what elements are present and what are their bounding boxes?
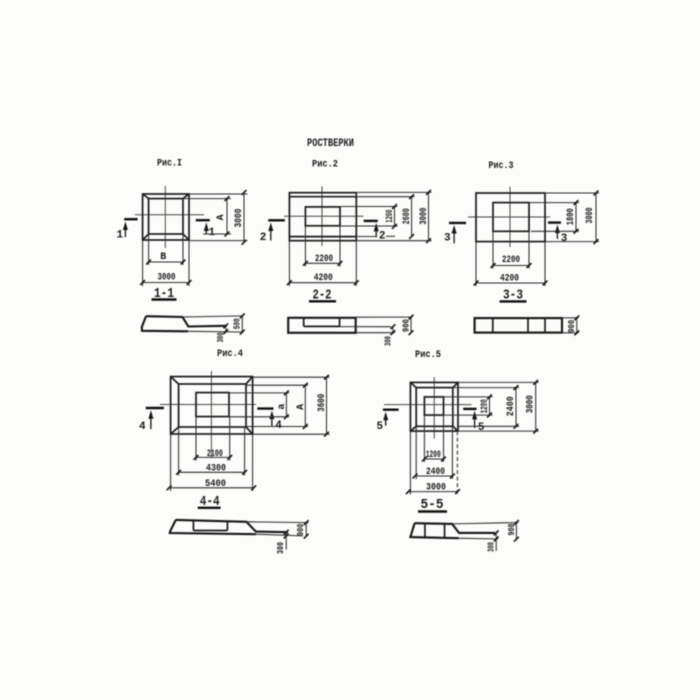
svg-text:1: 1 [116, 230, 123, 242]
svg-text:2200: 2200 [315, 254, 333, 265]
svg-text:3600: 3600 [317, 394, 328, 412]
svg-text:5400: 5400 [205, 479, 226, 490]
svg-text:1200: 1200 [480, 399, 491, 413]
svg-text:3000: 3000 [426, 482, 446, 493]
svg-text:3000: 3000 [234, 208, 245, 227]
svg-text:5: 5 [478, 422, 485, 434]
svg-text:3000: 3000 [585, 208, 596, 224]
svg-text:5: 5 [376, 421, 383, 433]
svg-text:В: В [160, 252, 166, 263]
svg-text:Рис.2: Рис.2 [312, 159, 338, 171]
svg-text:500: 500 [232, 318, 243, 329]
svg-text:2200: 2200 [502, 255, 520, 266]
svg-text:2: 2 [260, 232, 267, 244]
svg-text:1800: 1800 [566, 208, 577, 225]
svg-text:2400: 2400 [506, 396, 517, 416]
svg-text:2100: 2100 [207, 449, 223, 460]
svg-text:300: 300 [215, 332, 226, 342]
svg-text:Рис.I: Рис.I [157, 158, 182, 170]
svg-text:А: А [296, 404, 307, 410]
svg-text:3000: 3000 [419, 208, 430, 225]
svg-text:900: 900 [566, 320, 577, 333]
svg-text:1200: 1200 [426, 450, 441, 461]
svg-text:А: А [216, 214, 227, 220]
svg-text:РОСТВЕРКИ: РОСТВЕРКИ [307, 138, 354, 150]
svg-text:1: 1 [208, 227, 215, 239]
svg-text:4200: 4200 [500, 274, 519, 285]
svg-text:900: 900 [506, 523, 517, 535]
svg-text:300: 300 [275, 542, 286, 554]
svg-text:4200: 4200 [314, 273, 333, 284]
svg-text:900: 900 [295, 524, 306, 536]
svg-text:Рис.4: Рис.4 [217, 348, 243, 360]
svg-text:а: а [277, 404, 288, 410]
svg-text:3: 3 [561, 233, 568, 245]
svg-text:300: 300 [485, 542, 496, 552]
svg-text:300: 300 [382, 336, 393, 346]
svg-text:900: 900 [401, 319, 412, 332]
svg-text:2600: 2600 [402, 208, 413, 224]
svg-text:2400: 2400 [426, 467, 445, 478]
svg-text:4: 4 [139, 421, 146, 433]
svg-text:Рис.3: Рис.3 [489, 160, 514, 172]
svg-text:Рис.5: Рис.5 [415, 349, 441, 361]
svg-text:4300: 4300 [206, 464, 226, 475]
svg-text:3000: 3000 [526, 395, 537, 413]
svg-text:1200: 1200 [385, 210, 396, 223]
svg-text:3: 3 [444, 233, 451, 245]
svg-text:3000: 3000 [158, 272, 176, 283]
